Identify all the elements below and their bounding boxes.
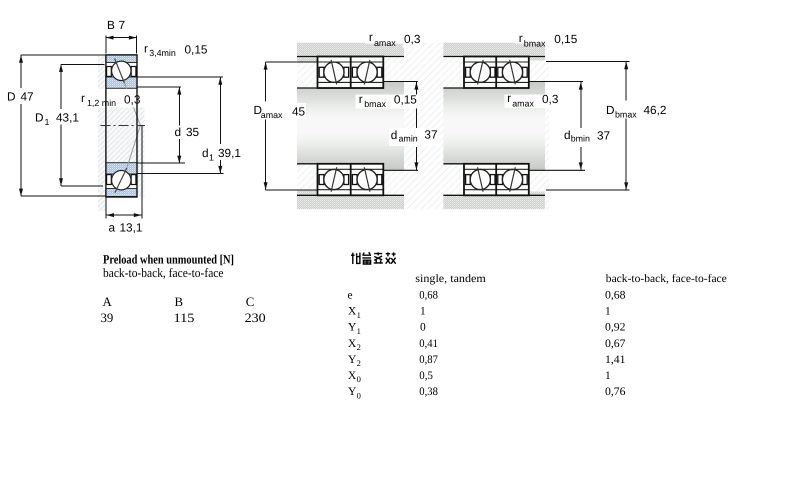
svg-text:2: 2: [357, 358, 361, 368]
svg-text:bmin: bmin: [571, 134, 590, 144]
svg-text:45: 45: [292, 104, 306, 118]
svg-text:47: 47: [21, 90, 34, 104]
svg-text:r: r: [359, 92, 363, 106]
svg-text:C: C: [246, 295, 255, 309]
svg-text:0,15: 0,15: [394, 92, 417, 106]
svg-text:3,4min: 3,4min: [149, 48, 176, 58]
svg-text:0,68: 0,68: [605, 290, 626, 302]
svg-text:13,1: 13,1: [120, 221, 143, 235]
svg-text:r: r: [81, 91, 85, 105]
svg-text:d: d: [564, 128, 571, 142]
svg-text:amax: amax: [261, 110, 283, 120]
svg-text:1: 1: [45, 117, 50, 127]
svg-text:0,3: 0,3: [542, 92, 559, 106]
svg-text:0,38: 0,38: [419, 386, 438, 398]
svg-text:D: D: [35, 111, 44, 125]
svg-text:bmax: bmax: [615, 110, 637, 120]
svg-text:e: e: [348, 290, 353, 302]
svg-text:1: 1: [605, 306, 611, 318]
svg-text:0,15: 0,15: [185, 43, 208, 57]
svg-text:Y: Y: [348, 354, 356, 366]
svg-text:r: r: [144, 42, 148, 56]
svg-text:0,87: 0,87: [419, 354, 438, 366]
svg-text:amax: amax: [512, 99, 534, 109]
svg-text:7: 7: [119, 18, 126, 32]
svg-text:35: 35: [186, 125, 200, 139]
svg-text:1: 1: [357, 326, 361, 336]
svg-text:0: 0: [357, 374, 361, 384]
svg-text:d: d: [202, 146, 209, 160]
svg-text:39,1: 39,1: [218, 146, 241, 160]
svg-text:1: 1: [357, 310, 361, 320]
svg-text:r: r: [519, 31, 523, 45]
svg-text:46,2: 46,2: [644, 103, 667, 117]
svg-text:bmax: bmax: [364, 99, 386, 109]
svg-text:A: A: [103, 295, 113, 309]
svg-text:amax: amax: [374, 38, 396, 48]
svg-text:0,76: 0,76: [605, 386, 626, 398]
svg-text:1: 1: [420, 306, 426, 318]
svg-text:0,67: 0,67: [605, 338, 626, 350]
svg-text:a: a: [109, 221, 116, 235]
svg-text:bmax: bmax: [524, 38, 546, 48]
svg-text:0: 0: [357, 390, 361, 400]
svg-text:37: 37: [597, 129, 610, 143]
svg-text:43,1: 43,1: [56, 111, 79, 125]
svg-text:0,5: 0,5: [419, 370, 433, 382]
svg-text:Y: Y: [348, 322, 356, 334]
svg-text:1: 1: [605, 370, 611, 382]
svg-text:0: 0: [420, 322, 426, 334]
svg-text:r: r: [369, 30, 373, 44]
svg-text:back-to-back, face-to-face: back-to-back, face-to-face: [606, 273, 727, 285]
svg-text:single, tandem: single, tandem: [415, 273, 486, 285]
svg-text:r: r: [507, 91, 511, 105]
svg-text:d: d: [391, 128, 398, 142]
svg-text:Preload when unmounted [N]: Preload when unmounted [N]: [103, 252, 234, 266]
svg-text:39: 39: [101, 311, 114, 325]
svg-text:115: 115: [174, 311, 195, 325]
svg-text:37: 37: [424, 127, 437, 141]
svg-text:D: D: [606, 103, 615, 117]
svg-text:back-to-back, face-to-face: back-to-back, face-to-face: [103, 266, 224, 280]
svg-text:d: d: [175, 125, 182, 139]
svg-text:0,92: 0,92: [605, 322, 626, 334]
svg-text:1: 1: [209, 153, 214, 163]
svg-text:0,15: 0,15: [554, 32, 577, 46]
svg-text:1,2 min: 1,2 min: [87, 98, 116, 108]
svg-text:230: 230: [245, 311, 266, 325]
svg-text:0,68: 0,68: [419, 290, 438, 302]
svg-text:Y: Y: [348, 386, 356, 398]
svg-text:D: D: [7, 90, 16, 104]
svg-text:amin: amin: [399, 134, 418, 144]
svg-text:0,3: 0,3: [404, 32, 421, 46]
svg-text:B: B: [175, 295, 184, 309]
svg-text:0,41: 0,41: [419, 338, 438, 350]
svg-text:1,41: 1,41: [605, 354, 626, 366]
svg-text:B: B: [107, 18, 115, 32]
svg-text:2: 2: [357, 342, 361, 352]
svg-text:0,3: 0,3: [124, 93, 141, 107]
